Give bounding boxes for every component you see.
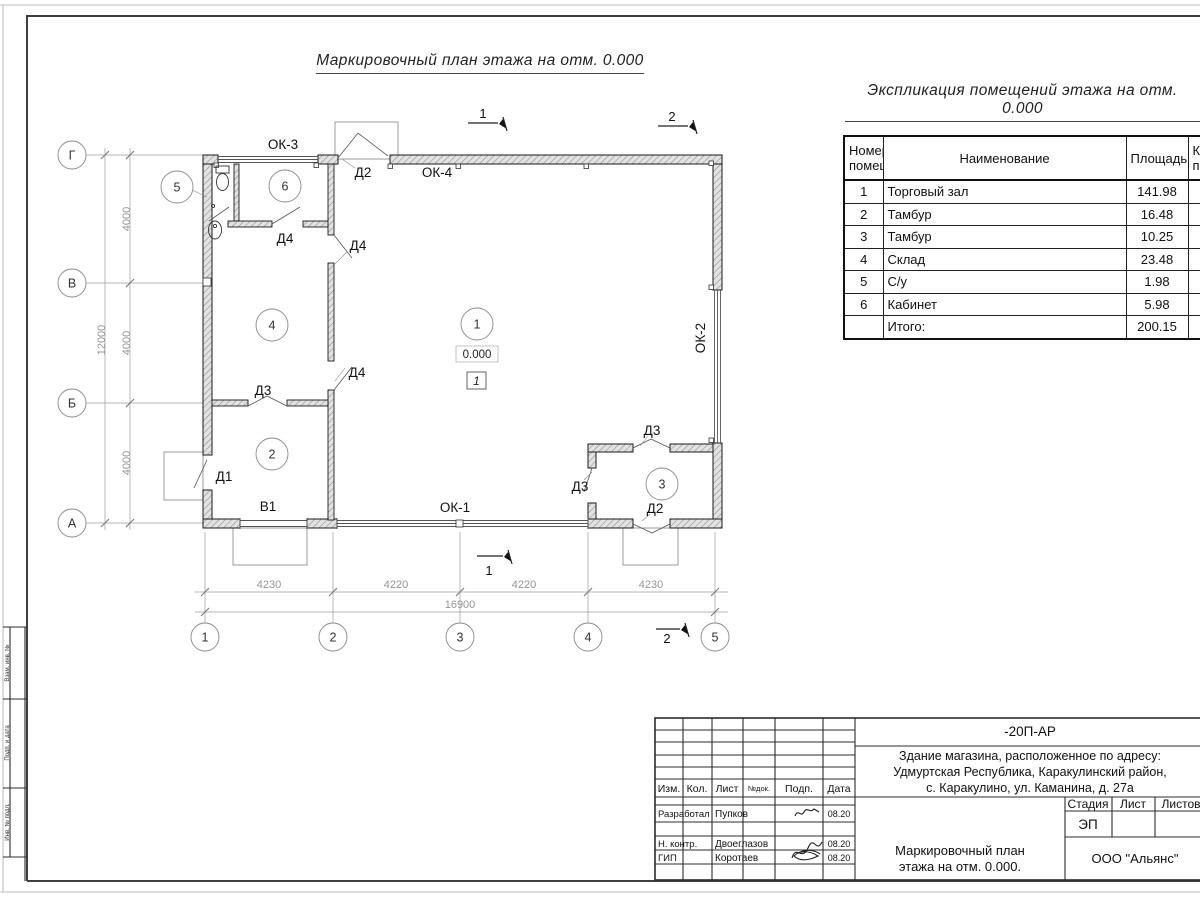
project-address-line: Здание магазина, расположенное по адресу… — [899, 749, 1161, 763]
h-dim-total: 16900 — [445, 599, 476, 611]
h-dim: 4230 — [257, 579, 281, 591]
stage-value: ЭП — [1078, 817, 1097, 832]
porches — [164, 122, 678, 565]
col-axis-label: 5 — [712, 631, 719, 645]
stamp-col-kol: Кол. — [687, 783, 708, 795]
stamp-role: Разработал — [658, 809, 710, 820]
section-number: 2 — [663, 631, 670, 646]
windows — [203, 157, 721, 530]
room-number: 5 — [174, 181, 181, 195]
doc-code: -20П-АР — [1004, 724, 1056, 739]
stamp-date: 08.20 — [828, 839, 851, 849]
window-label-ok1: ОК-1 — [440, 500, 470, 515]
window-label-ok2: ОК-2 — [693, 323, 708, 353]
v-dim: 4000 — [121, 331, 133, 355]
axis-bubbles: Г В Б А 1 2 3 4 5 — [58, 141, 729, 651]
drawing-name-line: Маркировочный план — [895, 843, 1025, 858]
drawing-sheet: { "titles": { "plan": "Маркировочный пла… — [0, 0, 1200, 900]
stamp-date: 08.20 — [828, 809, 851, 819]
side-stamp: Взам. инв. № Подп. и дата Инв. № подл. — [3, 627, 27, 881]
door-label-d4: Д4 — [349, 365, 366, 380]
col-axis-label: 2 — [330, 631, 337, 645]
door-label-d3: Д3 — [644, 423, 661, 438]
elevation-mark: 0.000 1 — [456, 346, 498, 389]
v-dim-total: 12000 — [96, 325, 108, 356]
table-row: 6Кабинет5.98 — [844, 293, 1200, 316]
door-label-d3: Д3 — [572, 479, 589, 494]
stamp-col-podp: Подп. — [785, 783, 813, 795]
stamp-name: Двоеглазов — [715, 839, 768, 850]
sheets-label: Листов — [1162, 797, 1200, 811]
explication-table-wrap: Номерпомещ. Наименование Площадь Капо 1Т… — [843, 135, 1200, 340]
plan-title: Маркировочный план этажа на отм. 0.000 — [280, 52, 680, 74]
col-axis-label: 4 — [585, 631, 592, 645]
section-number: 1 — [485, 563, 492, 578]
elevation-value: 0.000 — [463, 349, 492, 361]
h-dim: 4230 — [639, 579, 663, 591]
table-row: 2Тамбур16.48 — [844, 203, 1200, 226]
col-header-num: Номерпомещ. — [844, 136, 883, 180]
door-label-d1: Д1 — [216, 469, 233, 484]
title-block: Изм. Кол. Лист №док. Подп. Дата Разработ… — [655, 718, 1200, 880]
side-cell-label: Взам. инв. № — [4, 644, 11, 681]
row-axis-label: А — [68, 517, 77, 531]
stamp-col-izm: Изм. — [658, 783, 681, 795]
stamp-date: 08.20 — [828, 853, 851, 863]
side-cell-label: Подп. и дата — [5, 725, 11, 761]
stamp-col-data: Дата — [827, 783, 850, 795]
axis-lines — [86, 148, 728, 623]
floor-plan: 4000 4000 4000 12000 4230 4220 4220 4230… — [58, 106, 729, 651]
row-axis-label: Г — [69, 149, 76, 163]
table-row-total: Итого:200.15 — [844, 316, 1200, 339]
side-cell-label: Инв. № подл. — [4, 803, 11, 841]
door-label-d2: Д2 — [355, 165, 372, 180]
door-label-d4: Д4 — [350, 238, 367, 253]
stamp-col-ndok: №док. — [748, 784, 770, 793]
company-name: ООО "Альянс" — [1092, 851, 1179, 866]
window-label-ok4: ОК-4 — [422, 165, 453, 180]
stage-label: Стадия — [1068, 797, 1109, 811]
h-dim: 4220 — [384, 579, 408, 591]
row-axis-label: В — [68, 277, 76, 291]
stamp-name: Пупков — [715, 809, 748, 820]
stamp-role: ГИП — [658, 853, 677, 864]
floor-type-mark: 1 — [473, 374, 480, 388]
toilet-icon — [216, 166, 229, 191]
drawing-name-line: этажа на отм. 0.000. — [899, 859, 1021, 874]
door-label-d2: Д2 — [647, 501, 664, 516]
project-address-line: с. Каракулино, ул. Каманина, д. 27а — [926, 781, 1134, 795]
v-dim: 4000 — [121, 451, 133, 475]
table-row: 5С/у1.98 — [844, 271, 1200, 294]
room-number: 6 — [282, 180, 289, 194]
col-header-name: Наименование — [883, 136, 1126, 180]
table-row: 1Торговый зал141.98 — [844, 180, 1200, 203]
door-label-d3: Д3 — [255, 383, 272, 398]
room-number: 4 — [269, 319, 276, 333]
col-header-category: Капо — [1188, 136, 1200, 180]
table-row: 3Тамбур10.25 — [844, 226, 1200, 249]
walls — [203, 155, 722, 528]
dimension-labels: 4000 4000 4000 12000 4230 4220 4220 4230… — [96, 207, 663, 611]
h-dim: 4220 — [512, 579, 536, 591]
col-axis-label: 3 — [457, 631, 464, 645]
col-header-area: Площадь — [1126, 136, 1188, 180]
stamp-col-list: Лист — [716, 783, 739, 795]
room-number: 3 — [659, 478, 666, 492]
leader-lines — [192, 159, 650, 521]
stamp-name: Коротаев — [715, 853, 758, 864]
sheet-label: Лист — [1120, 797, 1147, 811]
explication-table: Номерпомещ. Наименование Площадь Капо 1Т… — [843, 135, 1200, 340]
section-number: 2 — [668, 109, 675, 124]
room-number: 1 — [474, 318, 481, 332]
stamp-role: Н. контр. — [658, 839, 697, 850]
col-axis-label: 1 — [202, 631, 209, 645]
row-axis-label: Б — [68, 397, 76, 411]
gate-label-v1: В1 — [260, 499, 277, 514]
door-label-d4: Д4 — [277, 231, 294, 246]
room-number: 2 — [269, 448, 276, 462]
table-row: 4Склад23.48 — [844, 248, 1200, 271]
project-address-line: Удмуртская Республика, Каракулинский рай… — [893, 765, 1167, 779]
section-number: 1 — [479, 106, 486, 121]
v-dim: 4000 — [121, 207, 133, 231]
window-label-ok3: ОК-3 — [268, 137, 298, 152]
explication-title: Экспликация помещений этажа на отм. 0.00… — [845, 82, 1200, 122]
